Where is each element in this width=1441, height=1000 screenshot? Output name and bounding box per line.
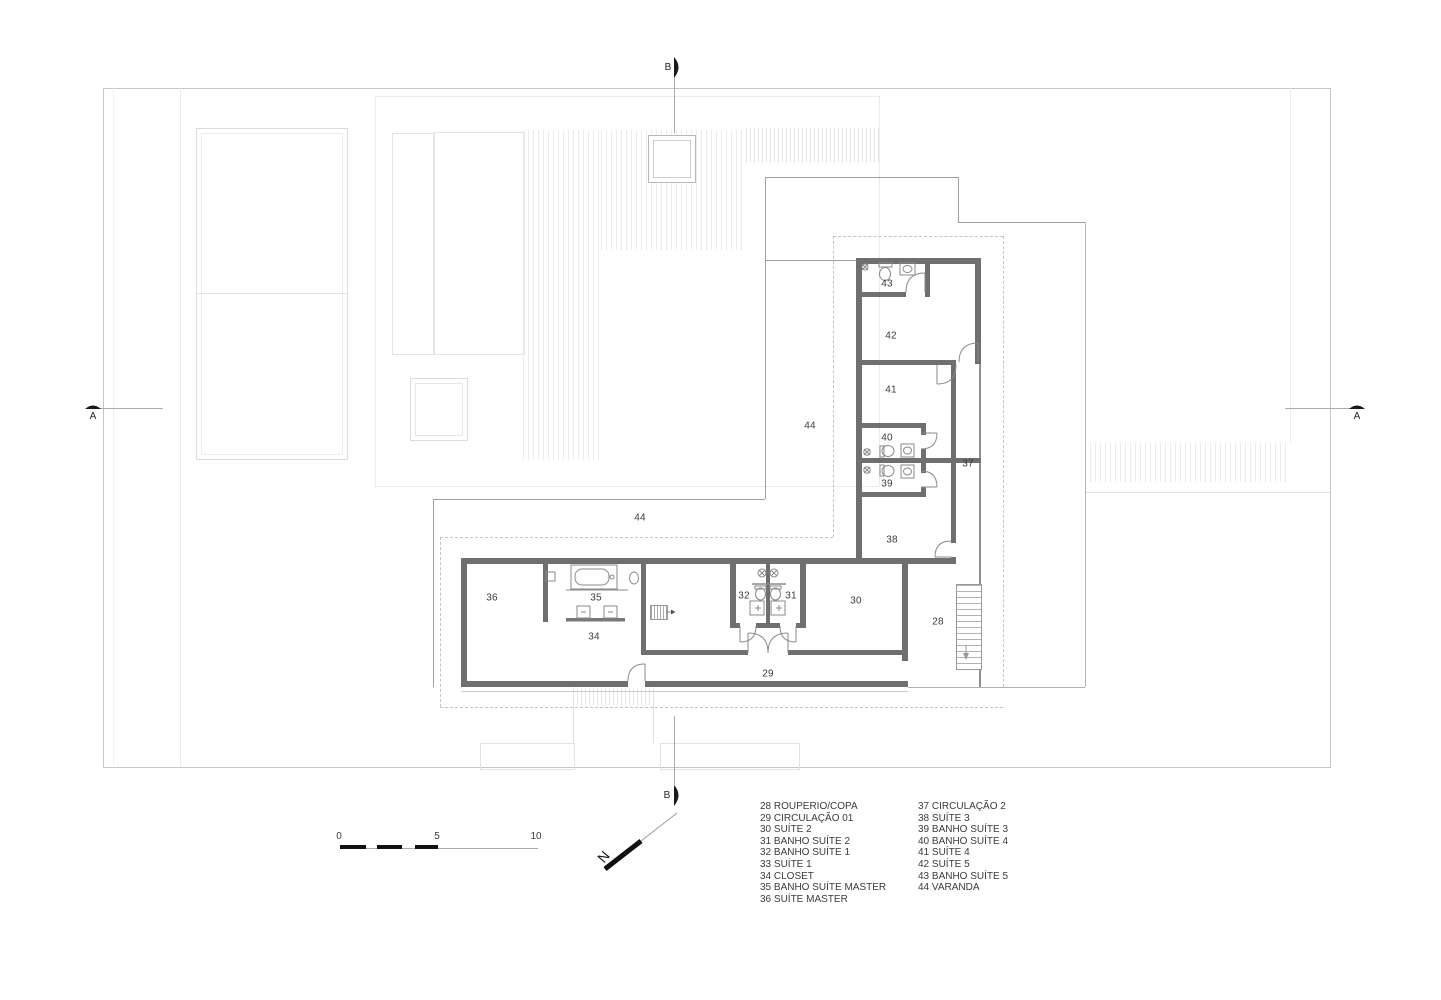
plan-line <box>653 687 654 743</box>
roof-dashed-line <box>833 236 834 537</box>
boardwalk-hatch <box>1090 443 1290 482</box>
scale-tick-label: 10 <box>530 831 541 842</box>
plan-line <box>1085 222 1086 687</box>
legend-entry: 38 SUÍTE 3 <box>918 813 1008 825</box>
wall-segment <box>856 258 981 264</box>
legend-entry: 28 ROUPERIO/COPA <box>760 801 886 813</box>
section-arrow-b-bottom <box>674 785 679 806</box>
plan-line <box>196 293 347 294</box>
plan-line <box>856 423 926 428</box>
plan-line <box>433 132 525 355</box>
section-label-b-bottom: B <box>664 790 671 801</box>
lower-floor-outline <box>765 177 958 178</box>
roof-dashed-line <box>440 707 1003 708</box>
plan-line <box>856 258 862 564</box>
plan-line <box>1085 492 1330 493</box>
varanda-edge <box>433 499 434 687</box>
floor-plan-sheet: N 4342414039373844443635343231302829 B B… <box>0 0 1441 1000</box>
section-arrow-b-top <box>674 57 679 78</box>
north-label: N <box>594 848 613 866</box>
legend-entry: 35 BANHO SUÍTE MASTER <box>760 882 886 894</box>
plan-line <box>645 681 908 687</box>
plan-line <box>660 743 800 770</box>
plan-line <box>788 650 906 655</box>
legend-entry: 42 SUÍTE 5 <box>918 859 1008 871</box>
section-arrow-a-right <box>1349 406 1365 410</box>
staircase <box>956 584 982 670</box>
scale-bar-segment <box>415 845 438 849</box>
plan-line <box>730 623 740 628</box>
plan-line <box>461 691 908 692</box>
deck-hatch <box>523 130 600 460</box>
plan-line <box>856 492 926 497</box>
plan-line <box>730 558 736 628</box>
scale-bar-segment <box>377 845 402 849</box>
plan-line <box>392 133 435 355</box>
plan-line <box>766 558 770 628</box>
legend-entry: 36 SUÍTE MASTER <box>760 894 886 906</box>
plan-line <box>958 177 959 222</box>
plan-line <box>921 487 926 497</box>
deck-hatch <box>746 128 880 162</box>
legend-entry: 39 BANHO SUÍTE 3 <box>918 824 1008 836</box>
plan-line <box>951 365 956 543</box>
plan-line <box>641 558 646 655</box>
legend-entry: 30 SUÍTE 2 <box>760 824 886 836</box>
plan-line <box>856 360 956 365</box>
plan-line <box>925 258 930 297</box>
section-label-b-top: B <box>665 62 672 73</box>
plan-line <box>543 558 548 622</box>
plan-line <box>201 133 343 455</box>
plan-line <box>921 423 926 435</box>
scale-bar-line <box>340 848 538 849</box>
legend-entry: 40 BANHO SUÍTE 4 <box>918 836 1008 848</box>
plan-line <box>908 687 1085 688</box>
legend-entry: 33 SUÍTE 1 <box>760 859 886 871</box>
section-label-a-left: A <box>90 411 97 422</box>
plan-line <box>958 222 1085 223</box>
north-arrow-icon: N <box>594 813 677 869</box>
plan-line <box>921 449 926 473</box>
plan-line <box>113 88 114 766</box>
roof-dashed-line <box>440 537 441 707</box>
legend-entry: 29 CIRCULAÇÃO 01 <box>760 813 886 825</box>
scale-tick-label: 5 <box>434 831 440 842</box>
legend-entry: 37 CIRCULAÇÃO 2 <box>918 801 1008 813</box>
plan-line <box>796 623 806 628</box>
legend-entry: 31 BANHO SUÍTE 2 <box>760 836 886 848</box>
plan-line <box>1290 88 1291 443</box>
plan-line <box>645 650 748 655</box>
plan-line <box>653 140 691 178</box>
legend-column-right: 37 CIRCULAÇÃO 238 SUÍTE 339 BANHO SUÍTE … <box>918 801 1008 894</box>
plan-line <box>461 558 467 687</box>
legend-entry: 34 CLOSET <box>760 871 886 883</box>
legend-entry: 43 BANHO SUÍTE 5 <box>918 871 1008 883</box>
plan-line <box>856 292 906 297</box>
scale-bar-segment <box>340 845 366 849</box>
step-ladder-icon <box>650 605 668 620</box>
plan-line <box>461 558 956 564</box>
roof-dashed-line <box>833 236 1003 237</box>
plan-line <box>180 88 181 766</box>
roof-dashed-line <box>1003 236 1004 687</box>
section-label-a-right: A <box>1354 411 1361 422</box>
plan-line <box>856 458 981 463</box>
legend-entry: 32 BANHO SUÍTE 1 <box>760 847 886 859</box>
legend-entry: 44 VARANDA <box>918 882 1008 894</box>
plan-line <box>975 258 981 364</box>
plan-line <box>480 743 575 770</box>
roof-dashed-line <box>440 537 833 538</box>
plan-line <box>902 558 908 661</box>
plan-line <box>765 177 766 499</box>
legend-column-left: 28 ROUPERIO/COPA29 CIRCULAÇÃO 0130 SUÍTE… <box>760 801 886 905</box>
plan-line <box>461 681 628 687</box>
scale-tick-label: 0 <box>336 831 342 842</box>
plan-line <box>765 260 856 261</box>
section-arrow-a-left <box>85 406 101 410</box>
varanda-edge <box>433 499 765 500</box>
legend-entry: 41 SUÍTE 4 <box>918 847 1008 859</box>
plan-line <box>415 383 463 436</box>
plan-line <box>756 623 780 628</box>
plan-line <box>800 558 806 628</box>
